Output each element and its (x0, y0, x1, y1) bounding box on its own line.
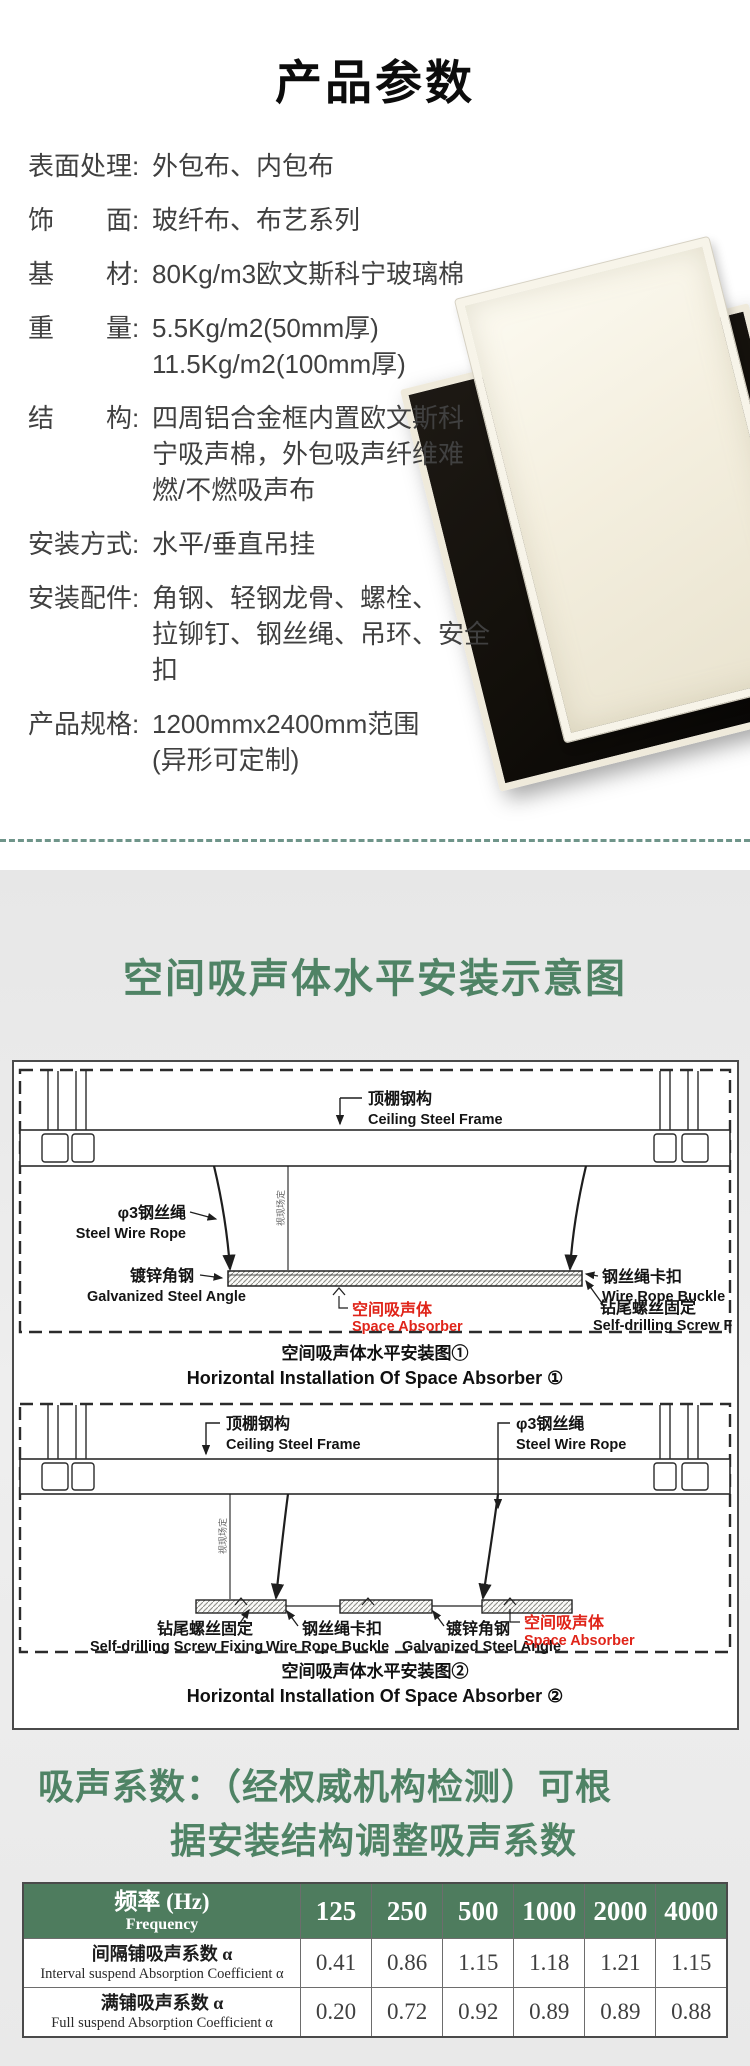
spec-row-install-method: 安装方式: 水平/垂直吊挂 (28, 526, 498, 562)
coef-cell: 1.18 (514, 1939, 585, 1988)
installation-section: 空间吸声体水平安装示意图 (0, 870, 750, 2066)
coef-cell: 0.86 (372, 1939, 443, 1988)
coef-cell: 1.21 (585, 1939, 656, 1988)
label-absorber-cn: 空间吸声体 (524, 1613, 605, 1632)
spec-label: 产品规格: (28, 706, 152, 778)
coef-cell: 0.89 (585, 1988, 656, 2038)
label-screw-cn: 钻尾螺丝固定 (157, 1619, 253, 1638)
spec-value: 水平/垂直吊挂 (152, 526, 315, 562)
spec-row-accessories: 安装配件: 角钢、轻钢龙骨、螺栓、 拉铆钉、钢丝绳、吊环、安全扣 (28, 580, 498, 688)
label-ceiling-en: Ceiling Steel Frame (226, 1437, 361, 1453)
product-parameters-section: 产品参数 表面处理: 外包布、内包布 饰 面: 玻纤布、布艺系列 基 材: 80… (0, 0, 750, 870)
spec-label: 结 构: (28, 400, 152, 508)
row-label-cn: 间隔铺吸声系数 α (24, 1943, 300, 1965)
page-title: 产品参数 (0, 0, 750, 113)
spec-label: 重 量: (28, 310, 152, 382)
freq-col-500: 500 (443, 1883, 514, 1939)
spec-value: 外包布、内包布 (152, 148, 334, 184)
table-row-full: 满铺吸声系数 α Full suspend Absorption Coeffic… (23, 1988, 727, 2038)
spec-label: 表面处理: (28, 148, 152, 184)
coef-cell: 1.15 (443, 1939, 514, 1988)
spec-row-weight: 重 量: 5.5Kg/m2(50mm厚) 11.5Kg/m2(100mm厚) (28, 310, 498, 382)
absorber-panel (228, 1271, 582, 1295)
label-buckle-cn: 钢丝绳卡扣 (302, 1619, 382, 1638)
row-label-cn: 满铺吸声系数 α (24, 1992, 300, 2014)
diagram1-caption-en: Horizontal Installation Of Space Absorbe… (14, 1366, 737, 1390)
spec-row-base-material: 基 材: 80Kg/m3欧文斯科宁玻璃棉 (28, 256, 498, 292)
coefficient-table: 频率 (Hz) Frequency 125 250 500 1000 2000 … (22, 1882, 728, 2038)
row-label-en: Full suspend Absorption Coefficient α (24, 2014, 300, 2032)
coef-cell: 0.88 (656, 1988, 727, 2038)
spec-label: 饰 面: (28, 202, 152, 238)
label-ceiling-en: Ceiling Steel Frame (368, 1112, 503, 1128)
label-ceiling-cn: 顶棚钢构 (368, 1089, 432, 1108)
diagram2-caption: 空间吸声体水平安装图② Horizontal Installation Of S… (14, 1660, 737, 1708)
frequency-header-cell: 频率 (Hz) Frequency (23, 1883, 301, 1939)
spec-label: 基 材: (28, 256, 152, 292)
coef-cell: 0.92 (443, 1988, 514, 2038)
label-wire-en: Steel Wire Rope (76, 1226, 186, 1242)
coefficient-heading: 吸声系数：（经权威机构检测）可根 据安装结构调整吸声系数 (0, 1760, 750, 1868)
coef-cell: 0.41 (301, 1939, 372, 1988)
frequency-header-cn: 频率 (Hz) (24, 1889, 300, 1915)
label-screw-en: Self-drilling Screw Fixing (90, 1639, 263, 1654)
spec-row-finish: 饰 面: 玻纤布、布艺系列 (28, 202, 498, 238)
wire-ropes (214, 1166, 586, 1270)
freq-col-1000: 1000 (514, 1883, 585, 1939)
label-absorber-en: Space Absorber (524, 1633, 635, 1649)
absorber-panels (196, 1598, 572, 1613)
diagram2-caption-cn: 空间吸声体水平安装图② (14, 1660, 737, 1684)
coef-cell: 0.89 (514, 1988, 585, 2038)
coef-cell: 0.72 (372, 1988, 443, 2038)
wire-ropes (230, 1494, 498, 1599)
label-screw-cn: 钻尾螺丝固定 (600, 1298, 696, 1317)
spec-list: 表面处理: 外包布、内包布 饰 面: 玻纤布、布艺系列 基 材: 80Kg/m3… (28, 148, 498, 796)
row-label-cell: 间隔铺吸声系数 α Interval suspend Absorption Co… (23, 1939, 301, 1988)
spec-value: 四周铝合金框内置欧文斯科 宁吸声棉，外包吸声纤维难 燃/不燃吸声布 (152, 400, 464, 508)
spec-value: 玻纤布、布艺系列 (152, 202, 360, 238)
label-ceiling-cn: 顶棚钢构 (226, 1414, 290, 1433)
label-angle-cn: 镀锌角钢 (130, 1266, 194, 1285)
label-buckle-cn: 钢丝绳卡扣 (602, 1267, 682, 1286)
freq-col-125: 125 (301, 1883, 372, 1939)
site-note-vertical: 视现场定 (275, 1190, 286, 1226)
table-header-row: 频率 (Hz) Frequency 125 250 500 1000 2000 … (23, 1883, 727, 1939)
frequency-header-en: Frequency (24, 1915, 300, 1934)
site-note-vertical: 视现场定 (217, 1518, 228, 1554)
freq-col-250: 250 (372, 1883, 443, 1939)
label-screw-en: Self-drilling Screw Fixing (593, 1318, 732, 1334)
spec-value: 80Kg/m3欧文斯科宁玻璃棉 (152, 256, 464, 292)
leader-lines (206, 1423, 520, 1626)
installation-title: 空间吸声体水平安装示意图 (0, 870, 750, 1004)
product-detail-page: 产品参数 表面处理: 外包布、内包布 饰 面: 玻纤布、布艺系列 基 材: 80… (0, 0, 750, 2066)
spec-label: 安装方式: (28, 526, 152, 562)
coef-cell: 1.15 (656, 1939, 727, 1988)
diagram-horizontal-install-1: 视现场定 顶棚钢构 Ceiling Steel Frame (18, 1068, 732, 1336)
diagram1-caption-cn: 空间吸声体水平安装图① (14, 1342, 737, 1366)
label-absorber-cn: 空间吸声体 (352, 1300, 433, 1319)
spec-row-surface: 表面处理: 外包布、内包布 (28, 148, 498, 184)
spec-row-size: 产品规格: 1200mmx2400mm范围 (异形可定制) (28, 706, 498, 778)
installation-diagrams: 视现场定 顶棚钢构 Ceiling Steel Frame (12, 1060, 739, 1730)
diagram-horizontal-install-2: 视现场定 (18, 1402, 732, 1654)
coef-cell: 0.20 (301, 1988, 372, 2038)
label-wire-cn: φ3钢丝绳 (118, 1203, 186, 1222)
spec-value: 5.5Kg/m2(50mm厚) 11.5Kg/m2(100mm厚) (152, 310, 406, 382)
freq-col-4000: 4000 (656, 1883, 727, 1939)
spec-label: 安装配件: (28, 580, 152, 688)
label-buckle-en: Wire Rope Buckle (266, 1639, 389, 1654)
spec-value: 1200mmx2400mm范围 (异形可定制) (152, 706, 419, 778)
label-wire-cn: φ3钢丝绳 (516, 1414, 584, 1433)
coefficient-heading-line2: 据安装结构调整吸声系数 (170, 1814, 750, 1868)
row-label-en: Interval suspend Absorption Coefficient … (24, 1965, 300, 1983)
spec-value: 角钢、轻钢龙骨、螺栓、 拉铆钉、钢丝绳、吊环、安全扣 (152, 580, 498, 688)
label-absorber-en: Space Absorber (352, 1319, 463, 1335)
dashed-divider (0, 839, 750, 842)
label-angle-en: Galvanized Steel Angle (87, 1289, 246, 1305)
diagram1-caption: 空间吸声体水平安装图① Horizontal Installation Of S… (14, 1342, 737, 1390)
label-angle-cn: 镀锌角钢 (446, 1619, 510, 1638)
coefficient-heading-line1: 吸声系数：（经权威机构检测）可根 (38, 1760, 750, 1814)
diagram2-caption-en: Horizontal Installation Of Space Absorbe… (14, 1684, 737, 1708)
row-label-cell: 满铺吸声系数 α Full suspend Absorption Coeffic… (23, 1988, 301, 2038)
freq-col-2000: 2000 (585, 1883, 656, 1939)
spec-row-structure: 结 构: 四周铝合金框内置欧文斯科 宁吸声棉，外包吸声纤维难 燃/不燃吸声布 (28, 400, 498, 508)
table-row-interval: 间隔铺吸声系数 α Interval suspend Absorption Co… (23, 1939, 727, 1988)
label-wire-en: Steel Wire Rope (516, 1437, 626, 1453)
